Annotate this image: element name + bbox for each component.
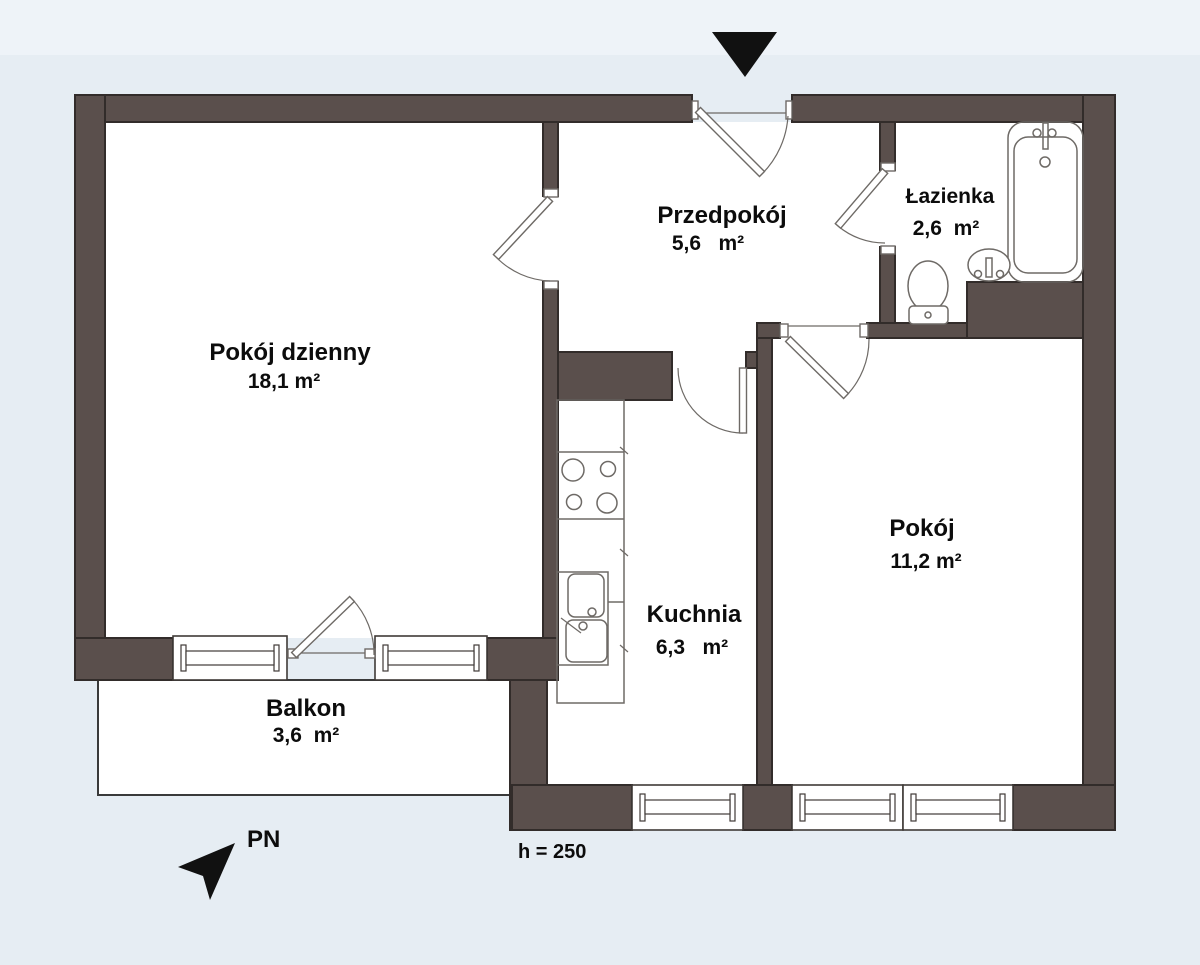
sink-basin <box>968 249 1010 281</box>
toilet-bowl <box>908 261 948 311</box>
window-glazing <box>186 651 274 665</box>
wall-living-hall-top <box>543 122 558 196</box>
window-glazing <box>388 651 474 665</box>
area-balcony: 3,6 m² <box>273 724 340 747</box>
label-bathroom: Łazienka <box>906 185 995 208</box>
window-room-2 <box>903 785 1013 830</box>
bath-sink-icon <box>968 249 1010 281</box>
window-tick <box>474 645 479 671</box>
area-bathroom: 2,6 m² <box>913 217 980 240</box>
window-tick <box>383 645 388 671</box>
window-room-1 <box>792 785 903 830</box>
wall-top-right <box>792 95 1115 122</box>
wall-bottom-kitchen <box>512 785 632 830</box>
floor-kitchen <box>543 352 772 785</box>
wall-bottom-living-left <box>75 638 173 680</box>
background-top-band <box>0 0 1200 55</box>
wall-bottom-pier <box>743 785 792 830</box>
window-living-2 <box>375 636 487 680</box>
label-balcony: Balkon <box>266 695 346 722</box>
wall-left <box>75 95 105 680</box>
ceiling-height-label: h = 250 <box>518 841 586 863</box>
wall-bath-left-bottom <box>880 247 895 323</box>
door-jamb-tab <box>881 246 895 254</box>
label-hallway: Przedpokój <box>657 202 786 229</box>
label-kitchen: Kuchnia <box>647 601 742 628</box>
window-tick <box>890 794 895 821</box>
window-tick <box>181 645 186 671</box>
toilet-tank <box>909 306 948 324</box>
window-tick <box>1000 794 1005 821</box>
area-living-room: 18,1 m² <box>248 370 320 393</box>
floor-plan-page: Pokój dzienny 18,1 m² Przedpokój 5,6 m² … <box>0 0 1200 965</box>
window-glazing <box>645 800 730 814</box>
toilet-icon <box>908 261 948 324</box>
label-living-room: Pokój dzienny <box>209 339 371 366</box>
door-jamb-tab <box>544 189 558 197</box>
wall-kitchen-room <box>757 323 772 785</box>
wall-bath-chunk <box>967 282 1083 338</box>
area-kitchen: 6,3 m² <box>656 636 728 659</box>
area-room: 11,2 m² <box>890 550 961 573</box>
door-jamb-tab <box>860 324 868 337</box>
wall-top-left <box>75 95 692 122</box>
wall-kitchen-door-jamb <box>746 352 757 368</box>
window-tick <box>911 794 916 821</box>
floor-living-room <box>105 122 558 638</box>
floor-plan-svg: Pokój dzienny 18,1 m² Przedpokój 5,6 m² … <box>0 0 1200 965</box>
window-tick <box>800 794 805 821</box>
wall-living-hall-bottom <box>543 282 558 638</box>
door-jamb-tab <box>544 281 558 289</box>
north-label: PN <box>247 826 280 853</box>
window-glazing <box>805 800 890 814</box>
wall-kitchen-room-stub <box>757 323 780 338</box>
wall-kitchen-chunk <box>558 352 672 400</box>
area-hallway: 5,6 m² <box>672 232 744 255</box>
window-tick <box>274 645 279 671</box>
window-kitchen <box>632 785 743 830</box>
door-leaf <box>740 368 747 433</box>
label-room: Pokój <box>889 515 954 542</box>
wall-bottom-living-right <box>487 638 558 680</box>
window-tick <box>730 794 735 821</box>
window-glazing <box>916 800 1000 814</box>
wall-bottom-corner <box>1013 785 1115 830</box>
window-living-1 <box>173 636 287 680</box>
door-jamb-tab <box>786 101 792 119</box>
window-tick <box>640 794 645 821</box>
wall-right <box>1083 95 1115 830</box>
door-jamb-tab <box>780 324 788 337</box>
